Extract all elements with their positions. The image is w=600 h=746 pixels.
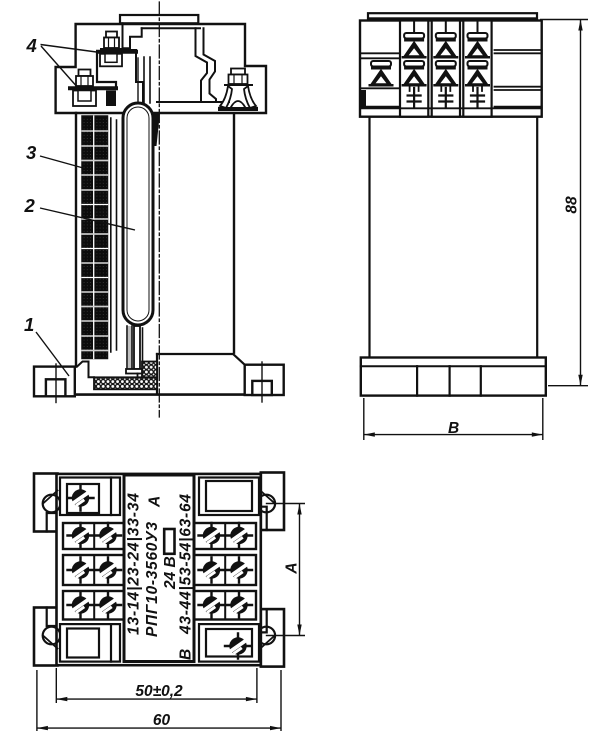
svg-text:В: В xyxy=(178,649,195,660)
svg-text:3: 3 xyxy=(26,142,37,163)
svg-text:А: А xyxy=(147,496,164,508)
svg-text:1: 1 xyxy=(24,314,34,335)
svg-text:4: 4 xyxy=(26,35,37,56)
svg-text:88: 88 xyxy=(564,196,581,214)
svg-text:В: В xyxy=(448,420,459,437)
svg-text:РПГ10-3560У3: РПГ10-3560У3 xyxy=(144,522,161,637)
svg-text:43-44|53-54|63-64: 43-44|53-54|63-64 xyxy=(178,494,195,635)
svg-text:А: А xyxy=(284,562,301,574)
svg-text:50±0,2: 50±0,2 xyxy=(135,683,183,700)
svg-text:13-14|23-24|33-34: 13-14|23-24|33-34 xyxy=(126,493,143,635)
svg-text:24 В: 24 В xyxy=(162,556,179,590)
svg-text:2: 2 xyxy=(24,195,36,216)
svg-text:60: 60 xyxy=(153,712,171,729)
